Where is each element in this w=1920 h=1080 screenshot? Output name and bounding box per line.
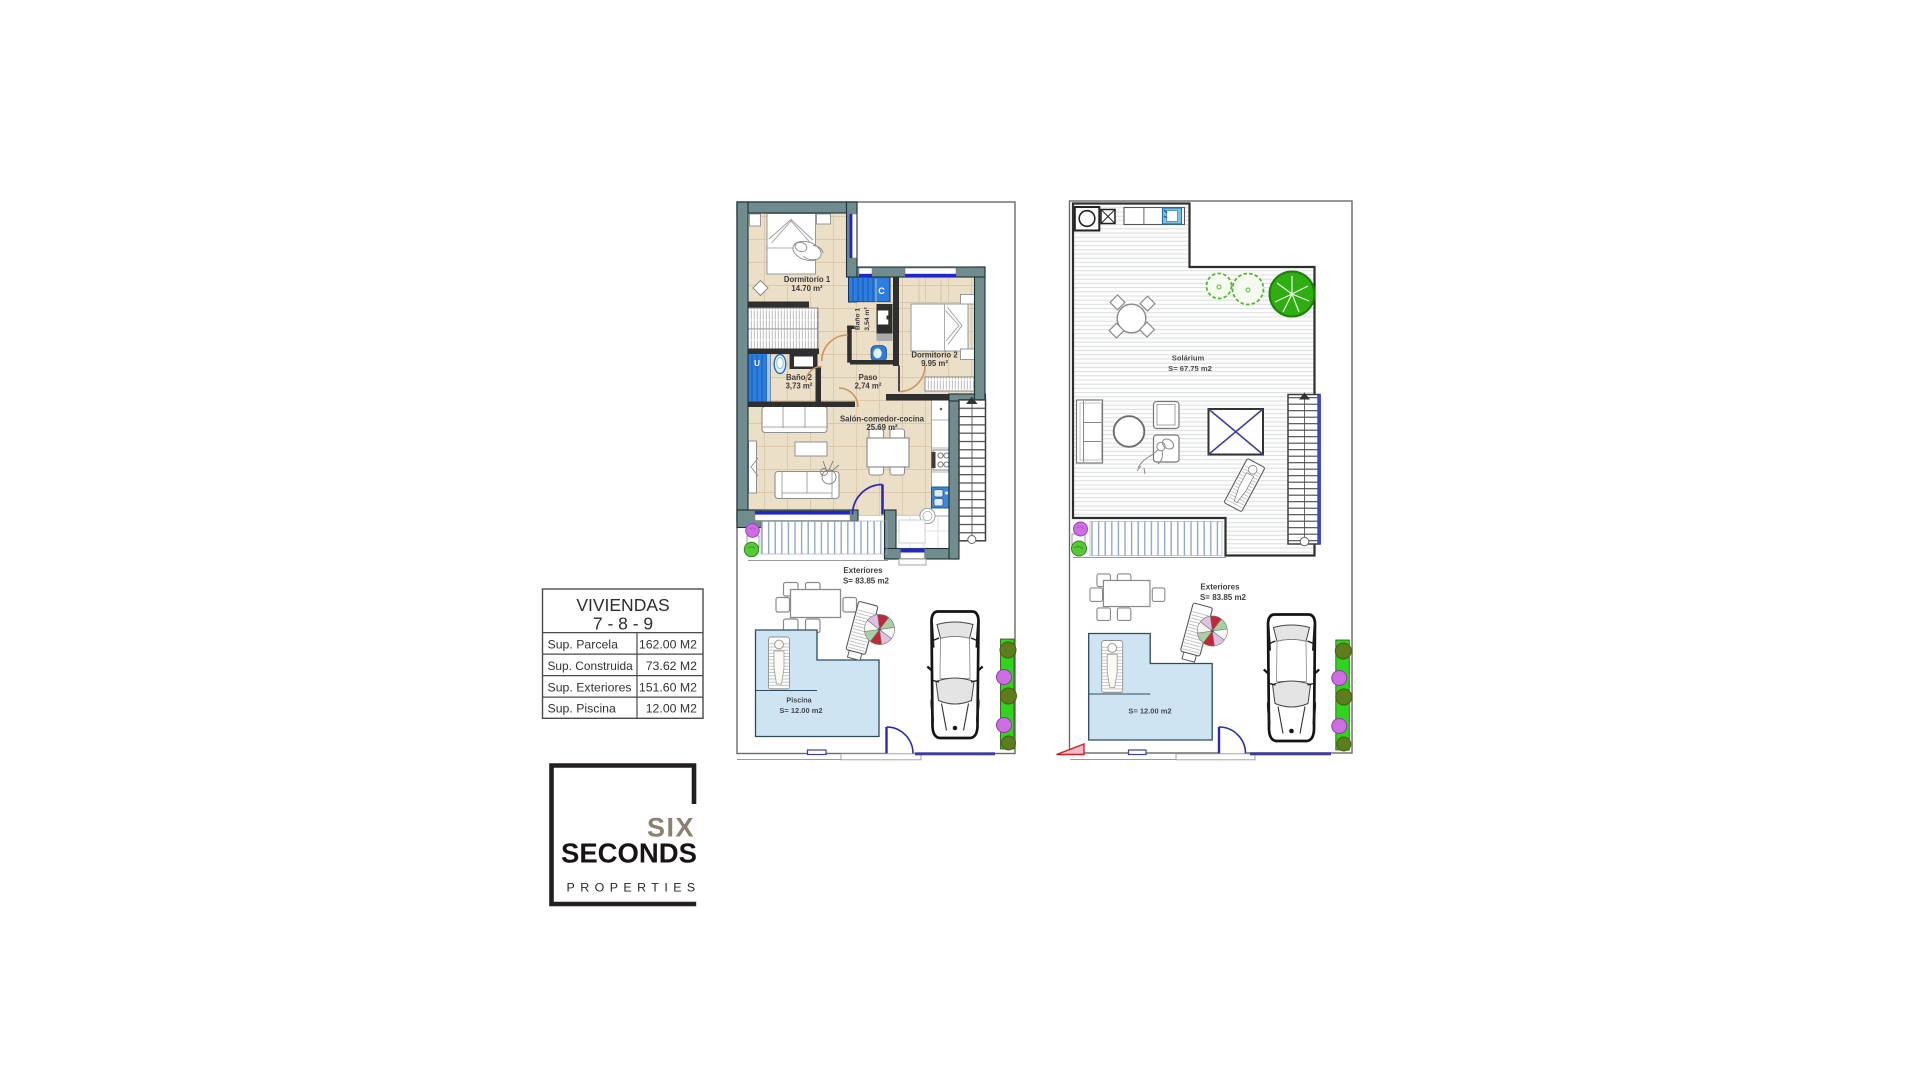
svg-text:S= 67.75 m2: S= 67.75 m2 [1168, 364, 1212, 373]
svg-text:C: C [878, 286, 885, 296]
svg-text:14.70 m²: 14.70 m² [791, 284, 823, 293]
svg-text:Sup. Construida: Sup. Construida [548, 659, 634, 673]
svg-text:25.69 m²: 25.69 m² [866, 423, 898, 432]
svg-text:Sup. Piscina: Sup. Piscina [548, 702, 617, 716]
svg-text:Sup. Exteriores: Sup. Exteriores [548, 680, 632, 694]
svg-text:12.00 M2: 12.00 M2 [646, 702, 697, 716]
svg-text:S= 83.85 m2: S= 83.85 m2 [1200, 593, 1247, 602]
svg-text:SECONDS: SECONDS [561, 838, 697, 869]
svg-text:VIVIENDAS: VIVIENDAS [576, 595, 669, 615]
svg-text:Solárium: Solárium [1172, 354, 1205, 363]
svg-text:151.60 M2: 151.60 M2 [639, 680, 697, 694]
svg-text:S= 83.85 m2: S= 83.85 m2 [843, 577, 890, 586]
svg-text:U: U [754, 359, 760, 368]
svg-text:7 - 8 - 9: 7 - 8 - 9 [593, 614, 653, 634]
svg-text:Dormitorio 1: Dormitorio 1 [784, 275, 831, 284]
svg-text:S= 12.00 m2: S= 12.00 m2 [1128, 707, 1171, 716]
svg-text:Baño 1: Baño 1 [855, 308, 862, 330]
svg-text:162.00 M2: 162.00 M2 [639, 637, 697, 651]
svg-text:2,74 m²: 2,74 m² [855, 382, 882, 391]
svg-text:Sup. Parcela: Sup. Parcela [548, 637, 619, 651]
svg-text:Exteriores: Exteriores [1200, 583, 1240, 592]
svg-text:Exteriores: Exteriores [843, 566, 883, 575]
svg-text:73.62 M2: 73.62 M2 [646, 659, 697, 673]
svg-text:3,54 m²: 3,54 m² [864, 307, 871, 331]
svg-text:S= 12.00 m2: S= 12.00 m2 [779, 706, 822, 715]
svg-text:9.95 m²: 9.95 m² [921, 359, 948, 368]
svg-text:Piscina: Piscina [786, 696, 812, 705]
svg-text:PROPERTIES: PROPERTIES [567, 881, 701, 895]
svg-text:3,73 m²: 3,73 m² [786, 382, 813, 391]
